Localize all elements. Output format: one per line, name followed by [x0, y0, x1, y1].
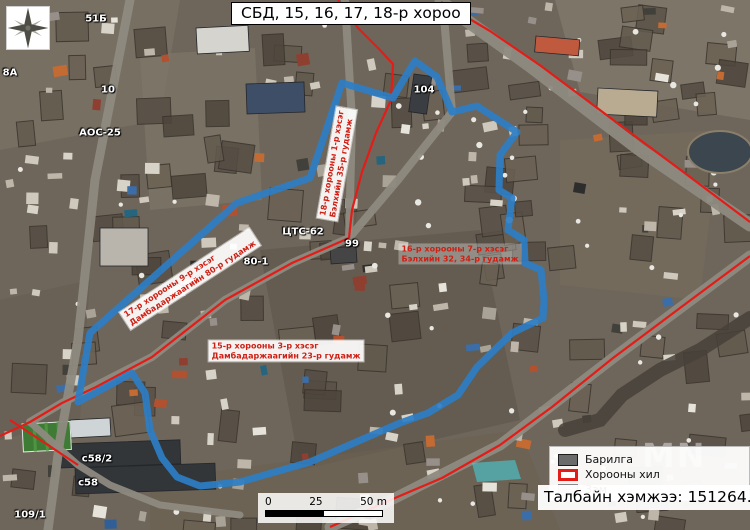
legend-label: Хорооны хил — [585, 468, 660, 481]
scale-tick-0: 0 — [265, 496, 272, 508]
highlighted-parcel — [472, 460, 521, 482]
legend-item-boundary: Хорооны хил — [558, 468, 743, 481]
map-viewport: 51Б8А10АОС-25104ЦТС-629980-1с58/2с58109/… — [0, 0, 750, 530]
area-bar: Талбайн хэмжээ: 151264.3 м2 — [538, 485, 750, 510]
scale-tick-25: 25 — [309, 496, 322, 508]
area-size-text: Талбайн хэмжээ: 151264.3 м2 — [544, 488, 750, 506]
legend-item-building: Барилга — [558, 453, 743, 466]
scale-strip — [265, 510, 383, 517]
scale-labels: 0 25 50 m — [265, 496, 387, 508]
legend-label: Барилга — [585, 453, 633, 466]
map-title: СБД, 15, 16, 17, 18-р хороо — [231, 2, 471, 25]
boundary-swatch-icon — [558, 469, 578, 481]
scale-tick-50: 50 m — [360, 496, 387, 508]
scale-bar: 0 25 50 m — [258, 493, 394, 523]
building-swatch-icon — [558, 454, 578, 466]
compass-rose-icon — [6, 6, 50, 50]
